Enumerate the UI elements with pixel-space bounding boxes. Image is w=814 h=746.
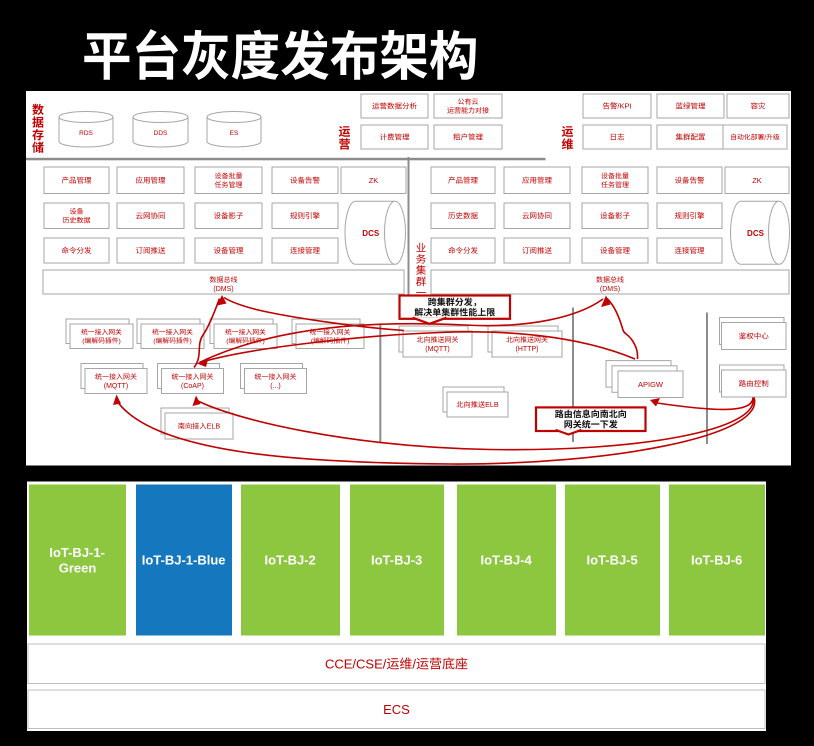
svg-text:DCS: DCS: [747, 229, 765, 238]
svg-text:ES: ES: [230, 130, 239, 137]
svg-text:ZK: ZK: [369, 176, 379, 185]
svg-text:RDS: RDS: [79, 130, 93, 137]
svg-text:IoT-BJ-3: IoT-BJ-3: [371, 553, 422, 568]
svg-text:ZK: ZK: [752, 176, 762, 185]
svg-text:(...): (...): [270, 383, 281, 390]
svg-text:(DMS): (DMS): [213, 286, 233, 293]
svg-text:/: /: [764, 134, 766, 141]
svg-text:IoT-BJ-4: IoT-BJ-4: [481, 553, 533, 568]
svg-text:/: /: [412, 656, 416, 671]
svg-text:DCS: DCS: [362, 229, 380, 238]
svg-text:(MQTT): (MQTT): [104, 383, 129, 390]
svg-text:IoT-BJ-5: IoT-BJ-5: [587, 553, 638, 568]
svg-text:/KPI: /KPI: [617, 102, 631, 111]
svg-text:(DMS): (DMS): [600, 286, 620, 293]
svg-text:IoT-BJ-1-: IoT-BJ-1-: [49, 545, 105, 560]
svg-text:): ): [190, 338, 192, 345]
svg-text:(MQTT): (MQTT): [425, 346, 450, 353]
svg-text:Green: Green: [59, 560, 97, 575]
svg-text:ELB: ELB: [207, 422, 221, 431]
svg-text:ECS: ECS: [383, 702, 410, 717]
svg-text:ELB: ELB: [485, 400, 499, 409]
svg-text:(HTTP): (HTTP): [516, 346, 539, 353]
svg-text:DDS: DDS: [154, 130, 168, 137]
svg-text:(CoAP): (CoAP): [181, 383, 204, 390]
svg-text:IoT-BJ-1-Blue: IoT-BJ-1-Blue: [142, 553, 226, 568]
svg-text:CCE/CSE/: CCE/CSE/: [325, 656, 387, 671]
svg-text:): ): [119, 338, 121, 345]
svg-text:APIGW: APIGW: [638, 380, 664, 389]
svg-text:IoT-BJ-6: IoT-BJ-6: [691, 553, 742, 568]
svg-text:IoT-BJ-2: IoT-BJ-2: [265, 553, 316, 568]
